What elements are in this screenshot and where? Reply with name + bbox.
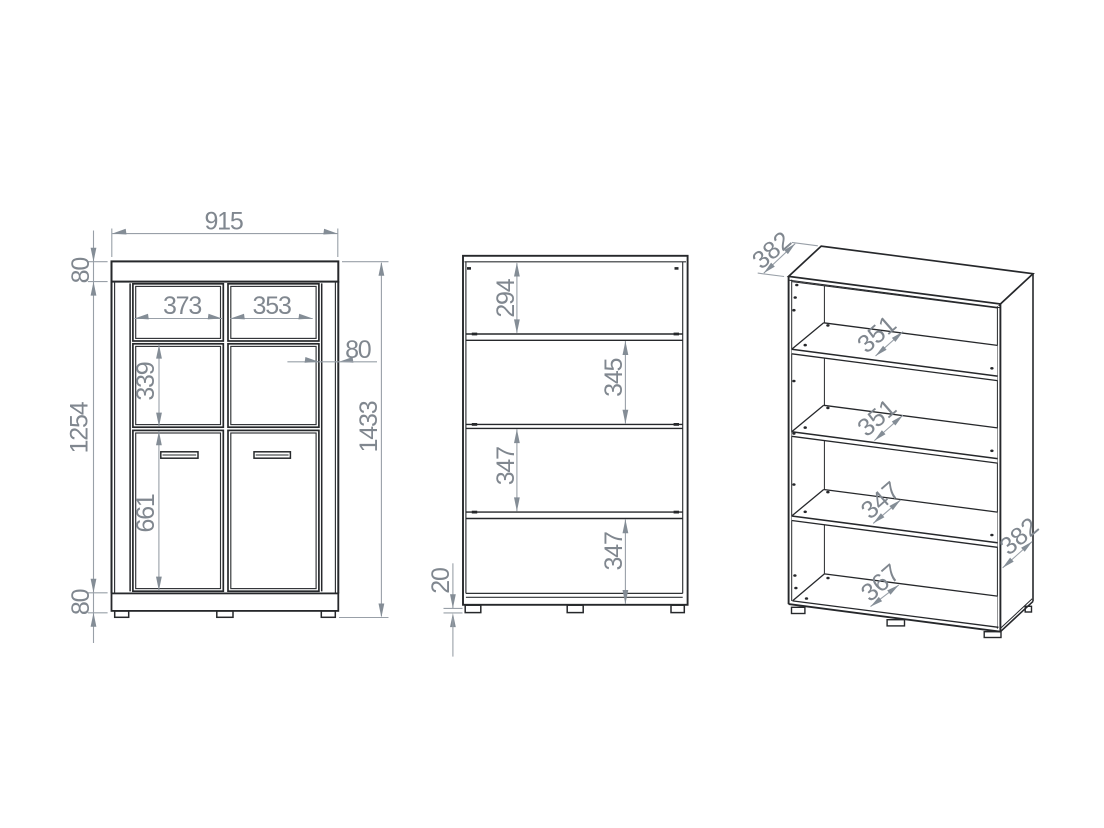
svg-text:661: 661 (132, 494, 160, 532)
svg-text:80: 80 (345, 336, 371, 364)
svg-text:1433: 1433 (355, 401, 383, 452)
svg-text:294: 294 (492, 278, 520, 317)
svg-text:80: 80 (67, 258, 95, 284)
svg-text:373: 373 (163, 292, 201, 320)
svg-text:339: 339 (132, 362, 160, 400)
svg-text:347: 347 (600, 532, 628, 570)
svg-text:1254: 1254 (65, 401, 93, 453)
svg-text:347: 347 (492, 447, 520, 485)
svg-text:353: 353 (253, 292, 291, 320)
svg-text:80: 80 (67, 589, 95, 615)
svg-text:20: 20 (427, 568, 455, 594)
svg-text:915: 915 (204, 207, 242, 235)
svg-text:345: 345 (600, 358, 628, 396)
